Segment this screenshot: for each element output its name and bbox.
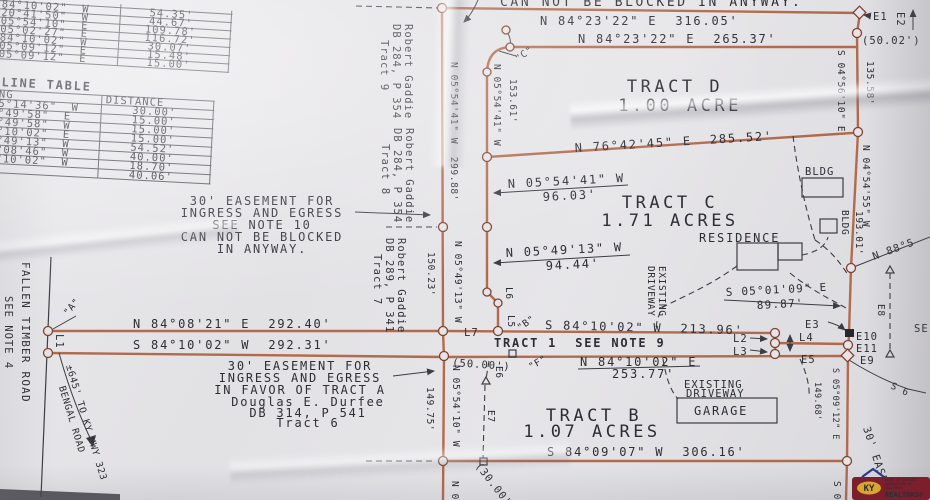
bearing-label: N 05°49'13" W	[452, 241, 463, 323]
table-cell-distance: 15.00'	[146, 57, 191, 72]
road-note: SEE NOTE 4	[2, 296, 14, 369]
survey-plat-photo: 84°10'02" W 20°41'50" W 05°54'10" E 05°0…	[0, 0, 930, 500]
point-label-e10: E10	[856, 331, 878, 343]
bearing-label: S 05°09'12" E	[830, 368, 840, 440]
upper-table: 84°10'02" W 20°41'50" W 05°54'10" E 05°0…	[0, 0, 233, 74]
owner-gaddie-9: Robert Gaddie DB 284, P 354 Tract 9	[378, 24, 414, 119]
distance-label: 135.58'	[864, 61, 875, 105]
road-edge-line	[41, 257, 51, 497]
bearing-label: N 84°23'22" E 265.37'	[578, 32, 777, 46]
blocked-note-top: CAN NOT BE BLOCKED IN ANYWAY.	[500, 0, 802, 10]
distance-label: 150.23'	[425, 252, 436, 296]
point-label-e1: E1	[873, 11, 888, 23]
point-label-e3: E3	[805, 319, 820, 331]
svg-text:Robert Gaddie: Robert Gaddie	[402, 24, 414, 119]
point-label-e5: E5	[801, 354, 816, 366]
point-label-l7: L7	[464, 327, 479, 339]
svg-text:EXISTING: EXISTING	[656, 266, 667, 317]
bearing-fragment: S 0	[831, 481, 842, 500]
bldg2-label: BLDG	[839, 210, 850, 235]
driveway-dash	[793, 136, 815, 240]
triangle-marker	[886, 266, 894, 273]
point-label-l4: L4	[799, 332, 814, 344]
point-label-e11: E11	[856, 343, 878, 355]
svg-text:Tract 8: Tract 8	[379, 144, 391, 195]
bearing-label: S 84°09'07" W 306.16'	[547, 445, 746, 459]
bearing-label: N 84°23'22" E 316.05'	[540, 14, 739, 28]
bearing-label: N 05°49'13" W	[505, 240, 623, 260]
bearing-fragment: N 0	[449, 481, 460, 500]
svg-text:DRIVEWAY: DRIVEWAY	[645, 266, 656, 317]
point-label-e6: E6	[493, 366, 504, 379]
distance-label: 94.44'	[545, 256, 600, 273]
bearing-label: N 84°08'21" E 292.40'	[133, 317, 332, 331]
residence-label: RESIDENCE	[699, 231, 780, 245]
bearing-label: N 76°42'45" E 285.52'	[574, 129, 773, 155]
road-name: FALLEN TIMBER ROAD	[19, 262, 32, 403]
svg-text:DB 284, P 354: DB 284, P 354	[391, 128, 403, 223]
realtor-logo: KY HEART OF KENTUCKY ASSOCIATION OF REAL…	[852, 468, 930, 500]
line-table: LINE TABLE NG DISTANCE 5°14'36" W °49'58…	[0, 74, 216, 185]
tract-c-area: 1.71 ACRES	[601, 211, 738, 231]
point-label-l3: L3	[733, 346, 748, 358]
easement-note-a: 30' EASEMENT FOR INGRESS AND EGRESS IN F…	[214, 359, 385, 397]
point-label-e9: E9	[860, 355, 875, 367]
distance-label: 96.03'	[542, 187, 597, 204]
garage-label: GARAGE	[694, 404, 748, 418]
svg-text:IN ANYWAY.: IN ANYWAY.	[217, 242, 307, 256]
point-label-l2: L2	[733, 333, 748, 345]
point-label-l1: L1	[53, 334, 65, 349]
svg-text:Tract 9: Tract 9	[378, 40, 390, 91]
plat-drawing: 84°10'02" W 20°41'50" W 05°54'10" E 05°0…	[0, 0, 930, 500]
bearing-fragment: N 88°5	[871, 237, 916, 263]
filled-square-marker	[845, 329, 854, 337]
hwy-distance-note: ±645' TO KY HWY 323 BENGAL ROAD	[51, 364, 109, 486]
easement-note-10: 30' EASEMENT FOR INGRESS AND EGRESS SEE …	[181, 194, 343, 256]
bearing-label: S 05°01'09" E	[725, 281, 827, 299]
svg-text:Tract 7: Tract 7	[371, 254, 383, 305]
svg-text:DB 289, P 341: DB 289, P 341	[383, 238, 395, 333]
bearing-label: S 84°10'02" W 292.31'	[133, 338, 332, 352]
svg-text:Robert Gaddie: Robert Gaddie	[403, 128, 415, 223]
bldg1-outline	[802, 178, 843, 197]
distance-label: 153.61'	[507, 79, 518, 123]
distance-label: 149.75'	[424, 387, 435, 431]
bearing-label: S 84°10'02" W 213.96'	[545, 318, 744, 337]
owner-gaddie-8: Robert Gaddie DB 284, P 354 Tract 8	[379, 128, 415, 223]
bearing-label: N 05°54'41" W 299.88'	[448, 62, 459, 201]
bearing-fragment: S 6	[889, 381, 911, 399]
driveway-label: DRIVEWAY	[686, 388, 745, 400]
logo-monogram: KY	[864, 484, 875, 494]
point-label-e2: E2	[894, 12, 906, 27]
text-fragment: SE	[914, 323, 929, 335]
distance-label: 149.68'	[812, 382, 822, 421]
corner-label-a: "A"	[62, 296, 83, 318]
residence-outline	[737, 243, 778, 270]
e7-tie-dash	[483, 385, 485, 458]
triangle-marker	[886, 350, 894, 357]
bearing-label: N 05°54'10" W	[450, 365, 461, 447]
table-cell-distance: 40.06'	[129, 169, 174, 183]
house-roof-icon	[862, 469, 884, 477]
point-label-l5: L5	[505, 315, 516, 328]
diamond-marker	[853, 6, 866, 19]
dim-label: (30.00'	[473, 460, 514, 500]
owner-gaddie-7: Robert Gaddie DB 289, P 341 Tract 7	[371, 238, 407, 333]
distance-label: 193.01'	[853, 211, 864, 255]
svg-text:Tract 6: Tract 6	[276, 416, 339, 430]
triangle-marker	[482, 377, 490, 384]
diamond-marker	[841, 349, 854, 362]
tract-d-area: 1.00 ACRE	[618, 96, 742, 116]
point-label-e8: E8	[875, 304, 886, 317]
bldg1-label: BLDG	[805, 166, 834, 178]
bldg2-outline	[820, 219, 837, 233]
tract-b-area: 1.07 ACRES	[523, 422, 660, 442]
bearing-label: S 04°56'10" E	[835, 50, 846, 132]
point-label-e7: E7	[485, 410, 496, 423]
residence-wing-outline	[778, 243, 802, 260]
bearing-label: N 05°54'41" W	[491, 64, 502, 146]
distance-label: 253.77'	[612, 367, 675, 381]
point-label-l6: L6	[503, 287, 514, 300]
svg-text:DB 284, P 354: DB 284, P 354	[390, 24, 402, 119]
tract-c-name: TRACT C	[622, 193, 718, 213]
tract-d-name: TRACT D	[627, 77, 723, 97]
owner-durfee: Douglas E. Durfee DB 314, P 541 Tract 6	[231, 395, 384, 430]
svg-text:Robert Gaddie: Robert Gaddie	[395, 238, 407, 333]
driveway-label-vertical: EXISTING DRIVEWAY	[645, 266, 667, 317]
distance-label: 89.87'	[756, 297, 804, 312]
logo-wordmark: REALTORS®	[885, 491, 924, 499]
dim-label: (50.02')	[862, 35, 921, 47]
table-cell-bearing: °10'02" W	[0, 153, 69, 169]
tract1-label: TRACT 1 SEE NOTE 9	[494, 336, 665, 350]
logo-small-line: REALTORS®	[885, 486, 902, 490]
